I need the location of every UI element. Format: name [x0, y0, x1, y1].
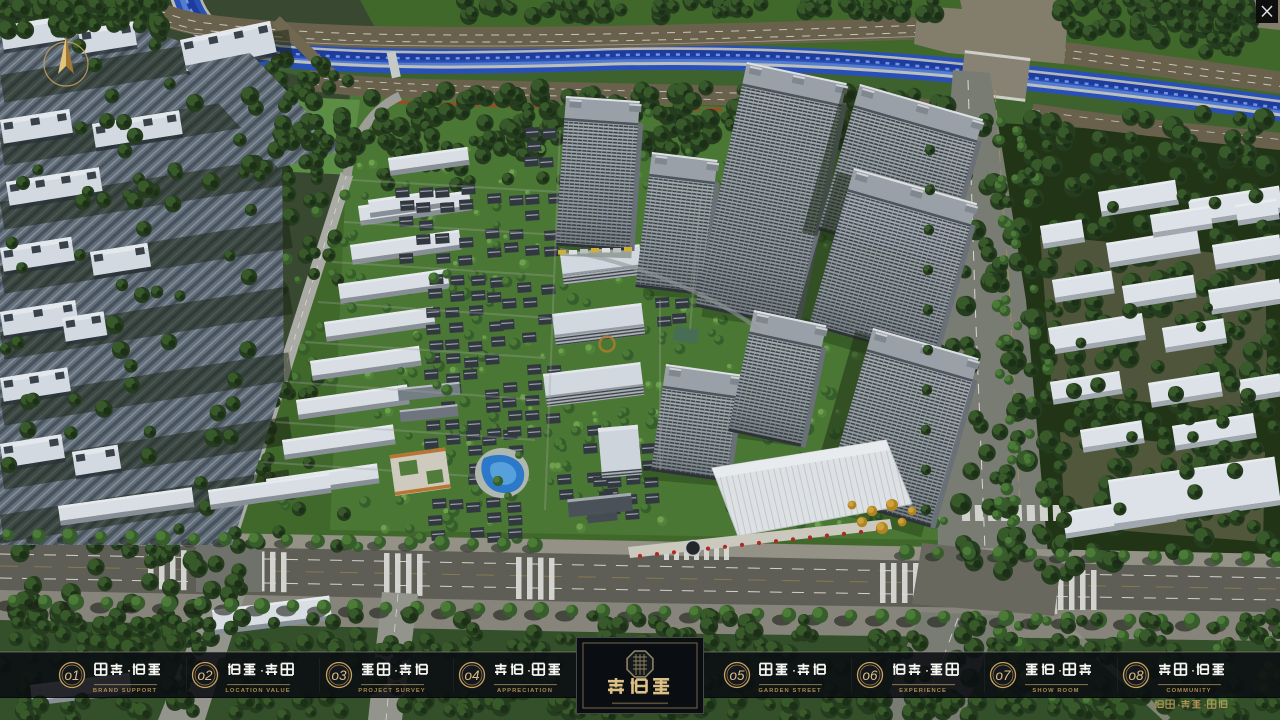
svg-text:PROJECT SURVEY: PROJECT SURVEY: [358, 688, 425, 694]
svg-text:o3: o3: [331, 668, 347, 683]
svg-text:o2: o2: [197, 668, 213, 683]
svg-text:o1: o1: [64, 668, 79, 683]
svg-text:o5: o5: [729, 668, 745, 683]
svg-text:o7: o7: [995, 668, 1011, 683]
svg-text:LOCATION VALUE: LOCATION VALUE: [225, 688, 290, 694]
svg-text:o4: o4: [464, 668, 479, 683]
svg-text:BRAND SUPPORT: BRAND SUPPORT: [93, 688, 157, 694]
svg-text:SHOW ROOM: SHOW ROOM: [1032, 688, 1079, 694]
svg-text:o8: o8: [1128, 668, 1144, 683]
svg-text:EXPERIENCE: EXPERIENCE: [899, 688, 947, 694]
svg-text:APPRECIATION: APPRECIATION: [497, 688, 553, 694]
svg-text:GARDEN STREET: GARDEN STREET: [758, 688, 821, 694]
svg-text:COMMUNITY: COMMUNITY: [1166, 688, 1211, 694]
svg-text:o6: o6: [862, 668, 878, 683]
